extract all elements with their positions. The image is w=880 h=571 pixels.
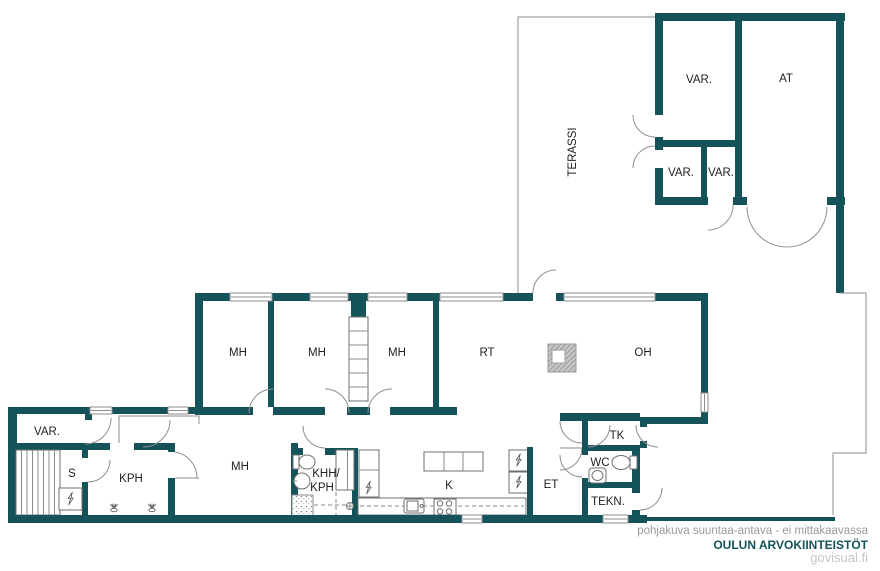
room-label-bathroom: KPH — [119, 473, 143, 485]
utility-door-arc — [303, 426, 325, 448]
shower-icon — [110, 504, 118, 512]
main-band-door-arcs — [249, 270, 556, 413]
kitchen-entry-wall — [527, 447, 533, 517]
toilet-icon — [293, 455, 315, 469]
room-label-storage-west: VAR. — [34, 426, 60, 438]
room-label-storage-small-left: VAR. — [668, 167, 694, 179]
entry-door-arcs — [560, 421, 582, 470]
hallway-outline — [119, 416, 199, 443]
patio-outline — [833, 293, 866, 515]
room-label-storage-small-right: VAR. — [708, 167, 734, 179]
fridge-icon — [509, 450, 528, 471]
room-label-vestibule: TK — [610, 430, 625, 442]
room-label-terrace: TERASSI — [567, 127, 579, 176]
footer-disclaimer: pohjakuva suuntaa-antava - ei mittakaava… — [637, 525, 868, 537]
patio-edge — [647, 517, 835, 521]
kitchen-upper-cabinets-icon — [424, 452, 483, 471]
wc-sink-icon — [589, 468, 606, 483]
room-label-bedroom-2: MH — [308, 347, 326, 359]
room-label-utility-line2: KPH — [310, 482, 334, 494]
room-label-wc: WC — [590, 457, 609, 469]
kitchen-counter — [358, 498, 526, 515]
main-band-walls — [195, 293, 708, 424]
kitchen-tall-unit-icon — [359, 450, 379, 497]
room-label-dining: RT — [479, 347, 494, 359]
sauna-stove-icon — [59, 488, 82, 510]
page: VAR. AT VAR. VAR. TERASSI MH MH MH RT OH… — [0, 0, 880, 571]
wc-toilet-icon — [612, 456, 637, 470]
room-label-sauna: S — [68, 468, 76, 480]
floor-plan: VAR. AT VAR. VAR. TERASSI MH MH MH RT OH… — [0, 0, 880, 571]
room-label-bedroom-3: MH — [388, 347, 406, 359]
room-label-living: OH — [634, 347, 651, 359]
terrace-outline — [518, 17, 655, 293]
room-label-technical: TEKN. — [591, 496, 625, 508]
south-wall — [8, 515, 647, 523]
sauna-benches-icon — [16, 450, 60, 515]
kitchen-sink-icon — [404, 499, 424, 513]
room-label-entry: ET — [544, 479, 559, 491]
footer-website: govisual.fi — [810, 550, 868, 565]
shower-icon — [148, 504, 156, 512]
room-label-bedroom-4: MH — [231, 461, 249, 473]
floor-drain-area — [292, 495, 313, 516]
room-label-garage-storage: VAR. — [686, 74, 712, 86]
room-label-garage: AT — [779, 73, 793, 85]
floor-drain-icon — [347, 503, 354, 510]
fireplace-icon — [548, 344, 576, 372]
room-label-bedroom-1: MH — [229, 347, 247, 359]
garage-block-walls — [655, 13, 845, 293]
wardrobe-icon — [349, 317, 368, 401]
room-label-utility-line1: KHH/ — [312, 468, 340, 480]
freezer-icon — [509, 472, 528, 493]
room-label-kitchen: K — [445, 480, 453, 492]
stove-icon — [434, 499, 456, 515]
